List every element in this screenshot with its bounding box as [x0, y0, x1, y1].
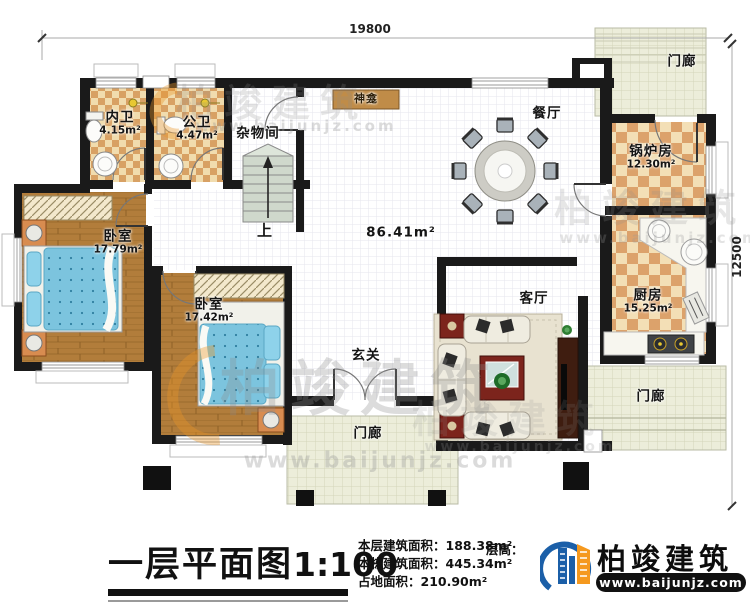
porch-right-floor	[586, 366, 726, 450]
room-label-shenkan: 神龛	[354, 93, 378, 105]
floor-height-label: 层高：	[486, 539, 524, 558]
pillow	[27, 252, 41, 286]
dimension-top: 19800	[349, 22, 391, 36]
room-label-bedroom2: 卧室 17.42m²	[185, 298, 234, 325]
room-label-guolufang: 锅炉房 12.30m²	[627, 145, 676, 172]
plan-title: 一层平面图1:100	[108, 536, 398, 587]
pillow	[264, 326, 280, 360]
floor-plan-page: 柏竣建筑 www.baijunjz.com 柏竣建筑 www.baijunjz.…	[0, 0, 750, 606]
stat-row: 占地面积：210.90m²	[358, 573, 512, 591]
bedroom1-furniture	[22, 196, 122, 356]
dimension-right: 12500	[730, 236, 744, 278]
chimney-notch	[580, 64, 604, 78]
title-underline-thin	[108, 600, 348, 602]
plan-title-text: 一层平面图	[108, 545, 293, 585]
company-name: 柏竣建筑	[597, 536, 733, 578]
company-logo-icon	[540, 536, 594, 596]
room-label-porch-top: 门廊	[668, 54, 697, 69]
room-label-stairs-up: 上	[257, 223, 273, 240]
room-label-porch-right: 门廊	[637, 389, 666, 404]
room-label-xuanguan: 玄关	[352, 348, 381, 363]
room-label-hall-area: 86.41m²	[366, 225, 436, 240]
room-label-zawujian: 杂物间	[236, 126, 280, 141]
room-label-bedroom1: 卧室 17.79m²	[94, 230, 143, 257]
company-url: www.baijunjz.com	[596, 573, 746, 592]
room-label-neiwei: 内卫 4.15m²	[99, 111, 140, 138]
wardrobe	[194, 274, 284, 298]
title-underline	[108, 589, 348, 596]
pillow	[264, 364, 280, 398]
coffee-table	[480, 356, 524, 400]
room-label-chufang: 厨房 15.25m²	[624, 289, 673, 316]
tv-cabinet	[558, 325, 578, 438]
room-label-gongwei: 公卫 4.47m²	[176, 116, 217, 143]
company-logo: 柏竣建筑 www.baijunjz.com	[540, 534, 746, 602]
wardrobe	[24, 196, 112, 220]
living-room-furniture	[434, 314, 578, 440]
room-label-canting: 餐厅	[533, 106, 562, 121]
room-label-keting: 客厅	[520, 291, 549, 306]
room-label-porch-bottom: 门廊	[354, 426, 383, 441]
pillow	[27, 292, 41, 326]
stairs	[243, 144, 293, 222]
